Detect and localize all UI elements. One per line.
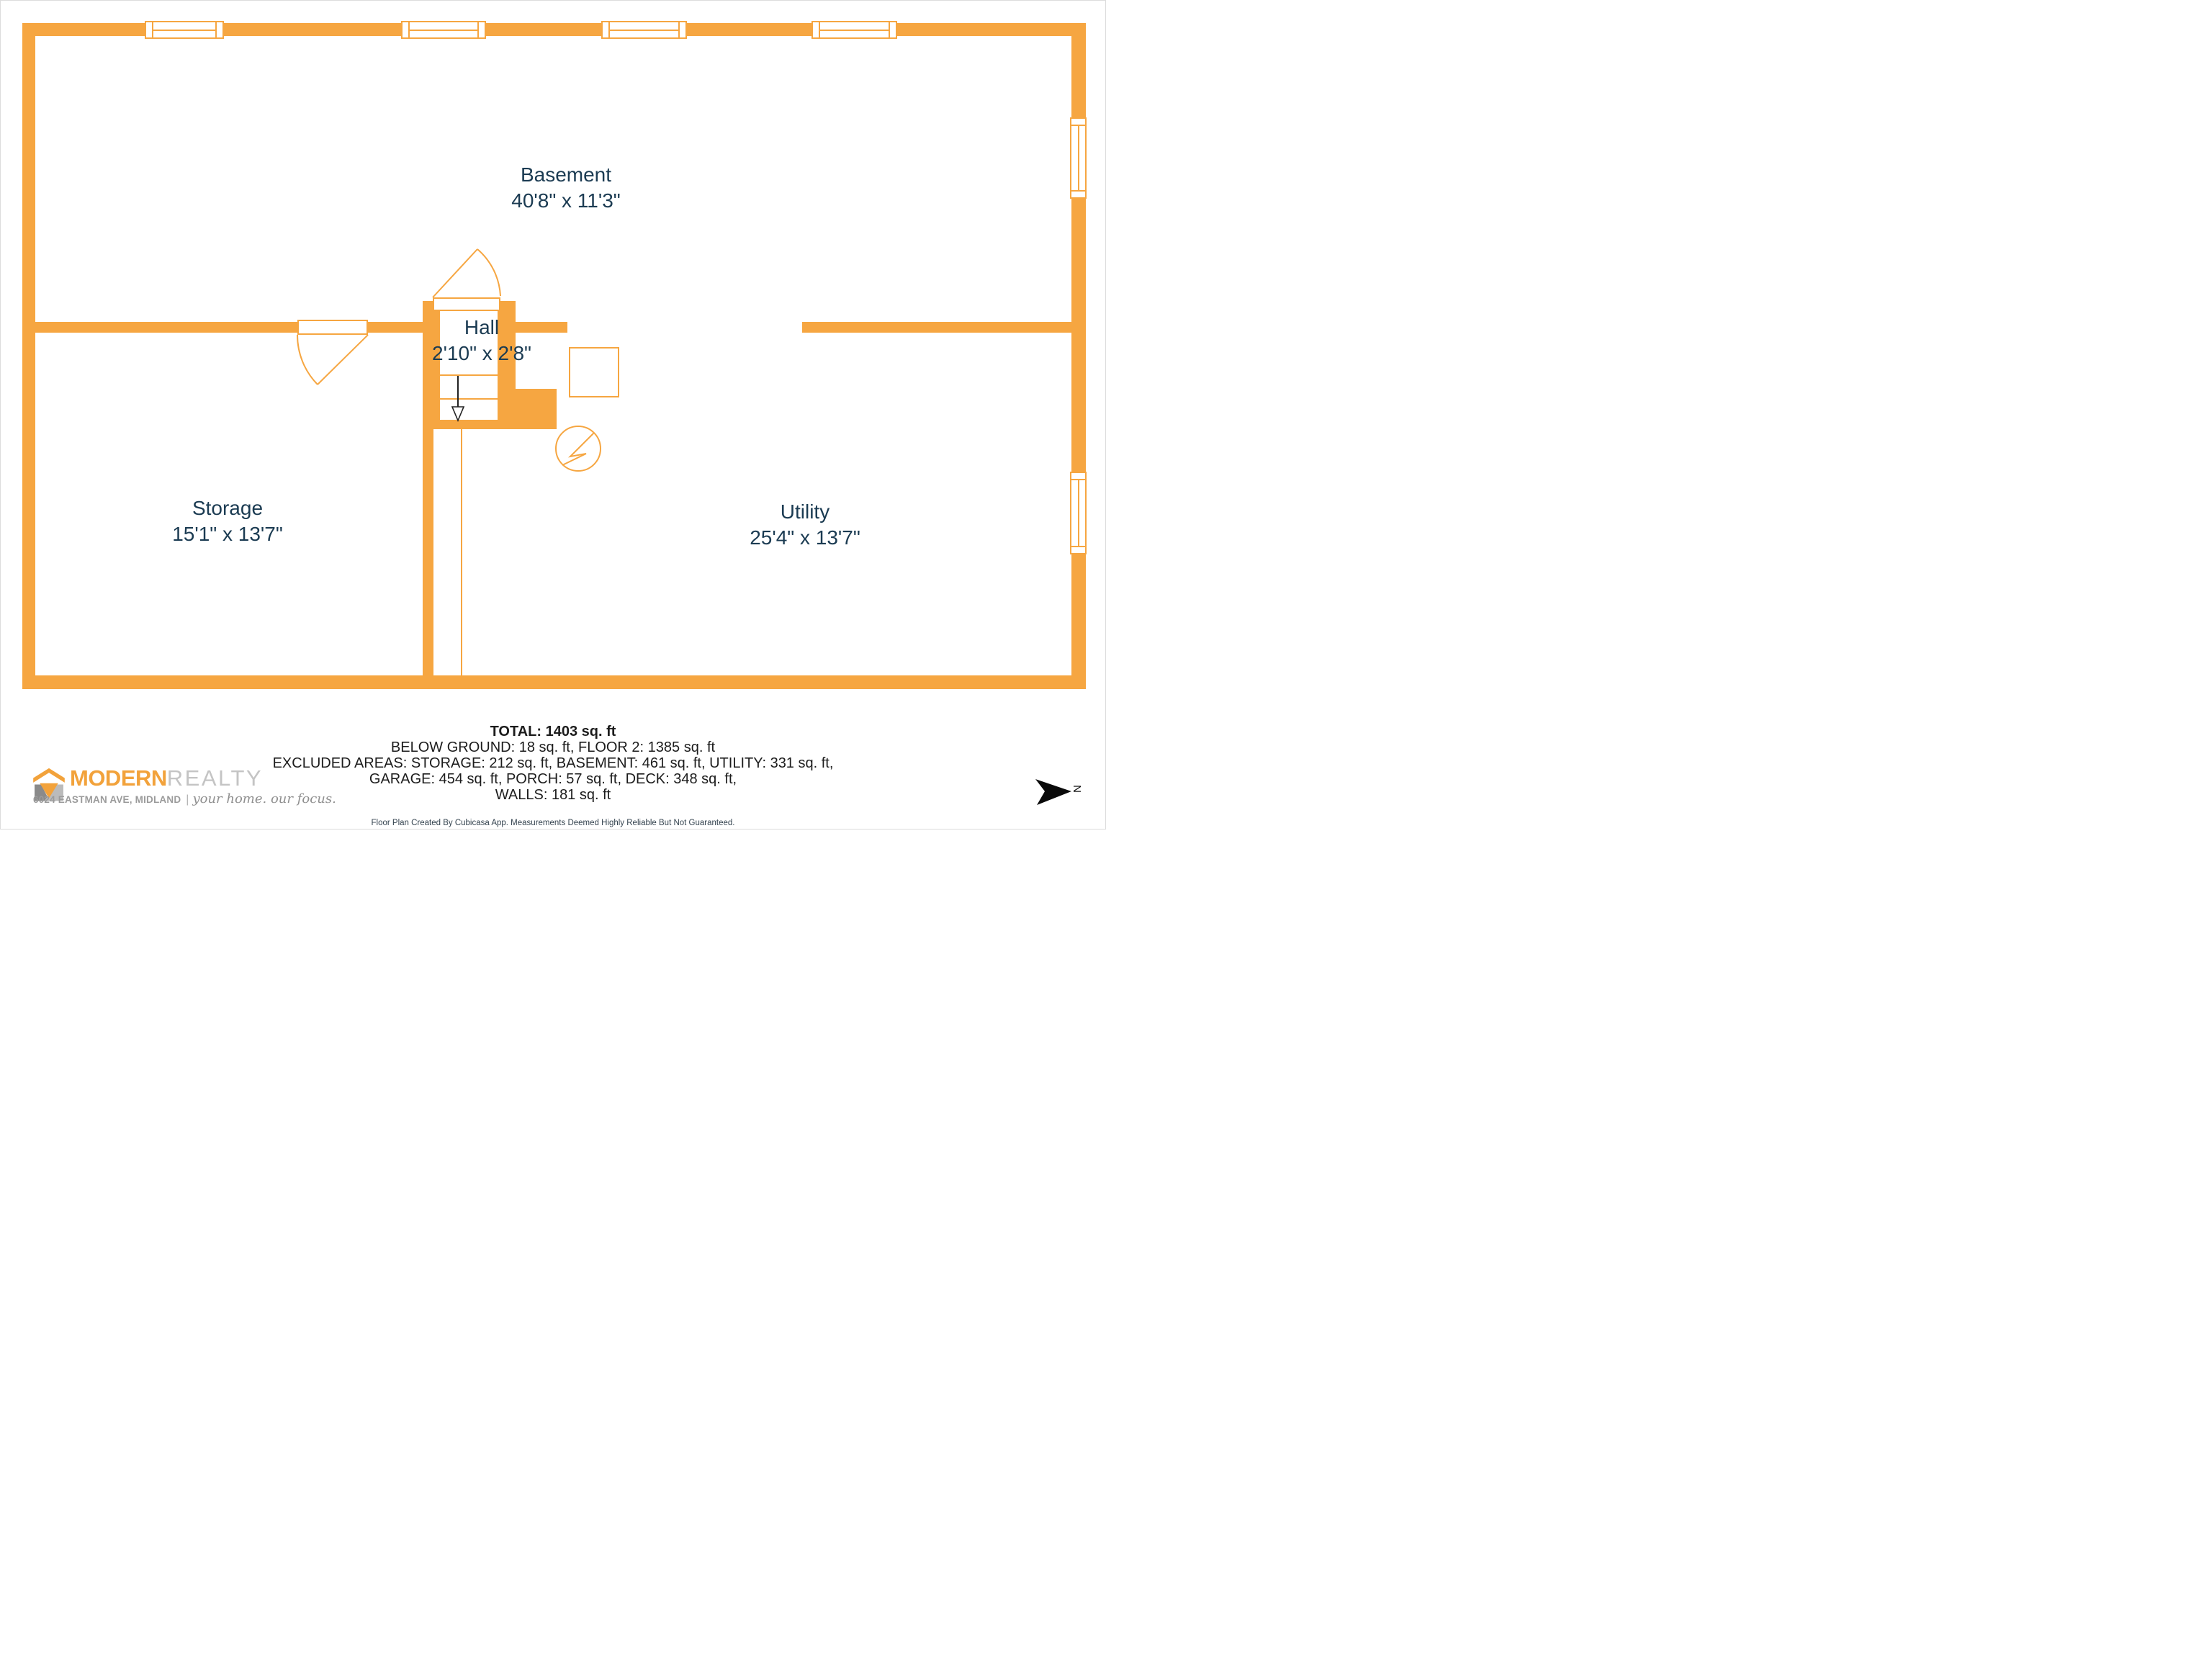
room-dimensions: 40'8" x 11'3" <box>422 188 710 214</box>
brand-name-primary: MODERN <box>70 765 167 791</box>
room-label-utility: Utility 25'4" x 13'7" <box>697 499 913 551</box>
stairs-down-arrow-icon <box>452 376 464 421</box>
brand-tagline: your home. our focus. <box>192 791 336 806</box>
door-swing-icon <box>433 249 500 297</box>
room-label-storage: Storage 15'1" x 13'7" <box>120 495 336 547</box>
room-label-hall: Hall 2'10" x 2'8" <box>410 315 554 367</box>
room-name: Utility <box>697 499 913 525</box>
brand-name: MODERNREALTY <box>70 767 263 789</box>
room-name: Storage <box>120 495 336 521</box>
floor-plan-page: Basement 40'8" x 11'3" Hall 2'10" x 2'8"… <box>0 0 1106 829</box>
brand-address: 6024 EASTMAN AVE, MIDLAND <box>33 794 181 805</box>
north-arrow-icon <box>1035 778 1071 806</box>
north-arrow: N <box>1035 778 1093 810</box>
plan-symbols-layer <box>1 1 1106 829</box>
total-area-text: TOTAL: 1403 sq. ft <box>1 724 1105 739</box>
room-dimensions: 15'1" x 13'7" <box>120 521 336 547</box>
north-label: N <box>1071 785 1083 793</box>
area-line: BELOW GROUND: 18 sq. ft, FLOOR 2: 1385 s… <box>1 739 1105 755</box>
electric-panel-icon <box>556 426 601 471</box>
room-name: Hall <box>410 315 554 341</box>
room-name: Basement <box>422 162 710 188</box>
brand-name-secondary: REALTY <box>167 765 263 791</box>
door-swing-icon <box>297 335 368 385</box>
brand-logo: MODERNREALTY 6024 EASTMAN AVE, MIDLAND|y… <box>32 765 270 823</box>
brand-subline: 6024 EASTMAN AVE, MIDLAND|your home. our… <box>33 791 336 806</box>
room-dimensions: 25'4" x 13'7" <box>697 525 913 551</box>
brand-separator: | <box>186 793 189 806</box>
room-label-basement: Basement 40'8" x 11'3" <box>422 162 710 214</box>
room-dimensions: 2'10" x 2'8" <box>410 341 554 367</box>
